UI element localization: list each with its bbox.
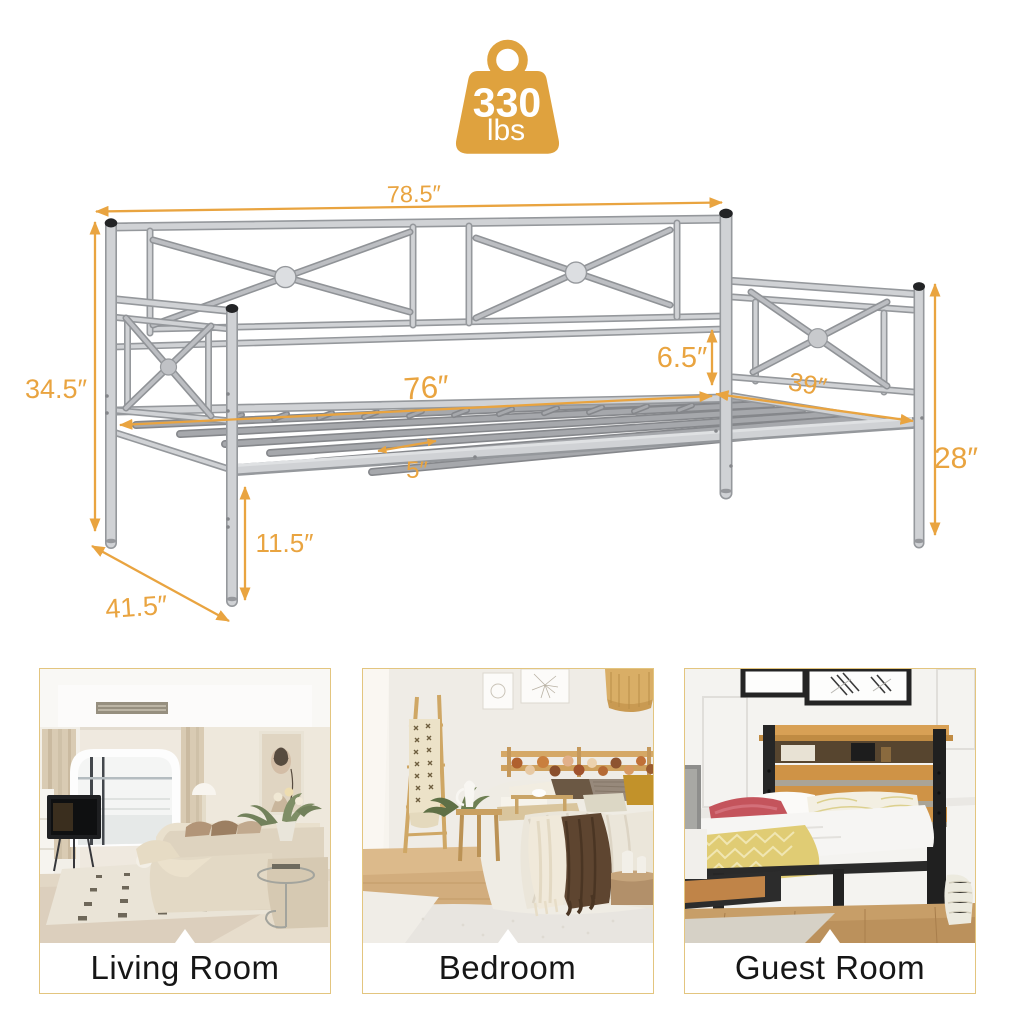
svg-text:5″: 5″ <box>406 457 428 484</box>
svg-text:78.5″: 78.5″ <box>387 181 442 208</box>
svg-text:76″: 76″ <box>402 368 450 406</box>
svg-text:39″: 39″ <box>786 366 829 402</box>
svg-text:28″: 28″ <box>934 442 978 475</box>
svg-text:34.5″: 34.5″ <box>25 374 88 404</box>
svg-text:6.5″: 6.5″ <box>657 342 708 374</box>
svg-text:11.5″: 11.5″ <box>256 528 314 558</box>
svg-text:41.5″: 41.5″ <box>104 590 168 624</box>
svg-text:lbs: lbs <box>487 114 525 147</box>
